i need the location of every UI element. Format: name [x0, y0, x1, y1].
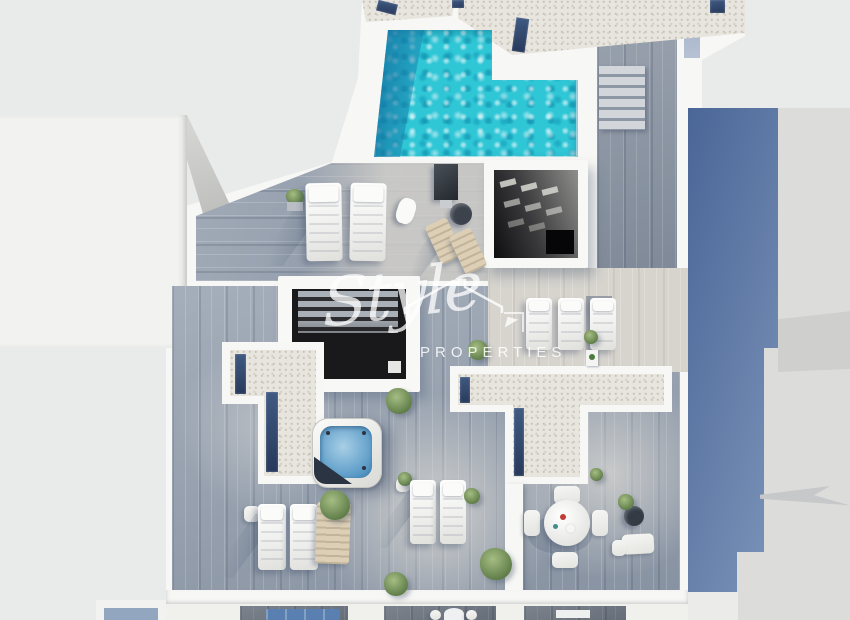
solar-strip-3	[710, 0, 725, 13]
lower-balcony-left	[104, 608, 158, 620]
neighbor-roof-shade	[778, 310, 850, 372]
sun-lounger	[349, 183, 386, 262]
potted-plant	[468, 340, 488, 360]
lounger-pillow	[308, 186, 338, 202]
lounger-pillow	[261, 507, 283, 520]
terrace-divider-wall	[505, 484, 523, 592]
lower-round-table	[444, 608, 464, 620]
skylight-interior	[494, 170, 578, 258]
lounger-cushion-lines	[529, 313, 549, 346]
solar-strip-5	[235, 354, 246, 394]
ceiling-light	[500, 178, 517, 188]
solar-strip-6	[266, 392, 278, 472]
bottom-right-wall	[688, 592, 738, 620]
ceiling-light	[542, 186, 559, 196]
lounger-pillow	[529, 301, 549, 311]
dining-chair	[552, 552, 578, 568]
potted-plant	[464, 488, 480, 504]
hot-tub-jet	[326, 431, 330, 435]
lower-chair	[466, 610, 477, 620]
lounger-cushion-lines	[561, 313, 581, 346]
planter-box	[287, 202, 303, 211]
lower-table	[556, 610, 590, 618]
solar-strip-7	[460, 377, 470, 403]
lower-chair	[430, 610, 441, 620]
table-plate-white	[566, 524, 575, 533]
stairwell-door	[388, 361, 401, 373]
lounger-pillow	[593, 301, 613, 311]
ceiling-light	[529, 222, 546, 232]
dining-chair	[524, 510, 540, 536]
lounger-pillow	[293, 507, 315, 520]
outdoor-shower-panel	[434, 164, 458, 200]
interior-dark-corner	[546, 230, 574, 254]
potted-plant	[384, 572, 408, 596]
sun-lounger	[258, 504, 286, 570]
sun-lounger	[526, 298, 552, 350]
ceiling-light	[504, 198, 521, 208]
sun-lounger	[410, 480, 436, 544]
solar-strip-8	[514, 408, 524, 476]
lounger-cushion-lines	[293, 522, 315, 566]
ceiling-light	[521, 182, 538, 192]
lounger-cushion-lines	[261, 522, 283, 566]
lounger-cushion-lines	[413, 498, 433, 540]
table-plate-teal	[553, 524, 558, 529]
lounger-cushion-lines	[443, 498, 463, 540]
small-desk	[621, 533, 654, 555]
desk-chair	[612, 540, 626, 556]
stairs	[599, 66, 645, 130]
sun-lounger	[305, 183, 342, 262]
dining-chair	[592, 510, 608, 536]
solar-strip-4	[452, 0, 464, 8]
ceiling-light	[546, 206, 563, 216]
blue-sofa	[266, 609, 340, 620]
sun-lounger	[558, 298, 584, 350]
potted-plant	[584, 330, 598, 344]
ceiling-light	[508, 218, 525, 228]
neighbor-gap-shadow	[187, 115, 233, 217]
lounger-cushion-lines	[309, 205, 340, 258]
potted-plant	[480, 548, 512, 580]
lounger-pillow	[413, 483, 433, 496]
lounger-cushion-lines	[352, 205, 383, 258]
sign-card-dot	[589, 354, 595, 360]
sun-lounger	[290, 504, 318, 570]
potted-plant	[320, 490, 350, 520]
potted-plant	[618, 494, 634, 510]
table-plate-red	[560, 514, 566, 520]
shower-base	[440, 200, 452, 208]
lounger-pillow	[561, 301, 581, 311]
neighbor-building-left	[0, 115, 187, 348]
lounger-pillow	[443, 483, 463, 496]
sun-lounger	[440, 480, 466, 544]
hot-tub-jet	[362, 466, 366, 470]
potted-plant	[590, 468, 603, 481]
lounger-pillow	[353, 186, 383, 202]
ceiling-light	[525, 202, 542, 212]
dining-table	[544, 500, 590, 546]
hot-tub-jet	[362, 431, 366, 435]
potted-plant	[386, 388, 412, 414]
round-side-table-dark	[450, 203, 472, 225]
rooftop-render: Style PROPERTIES	[0, 0, 850, 620]
